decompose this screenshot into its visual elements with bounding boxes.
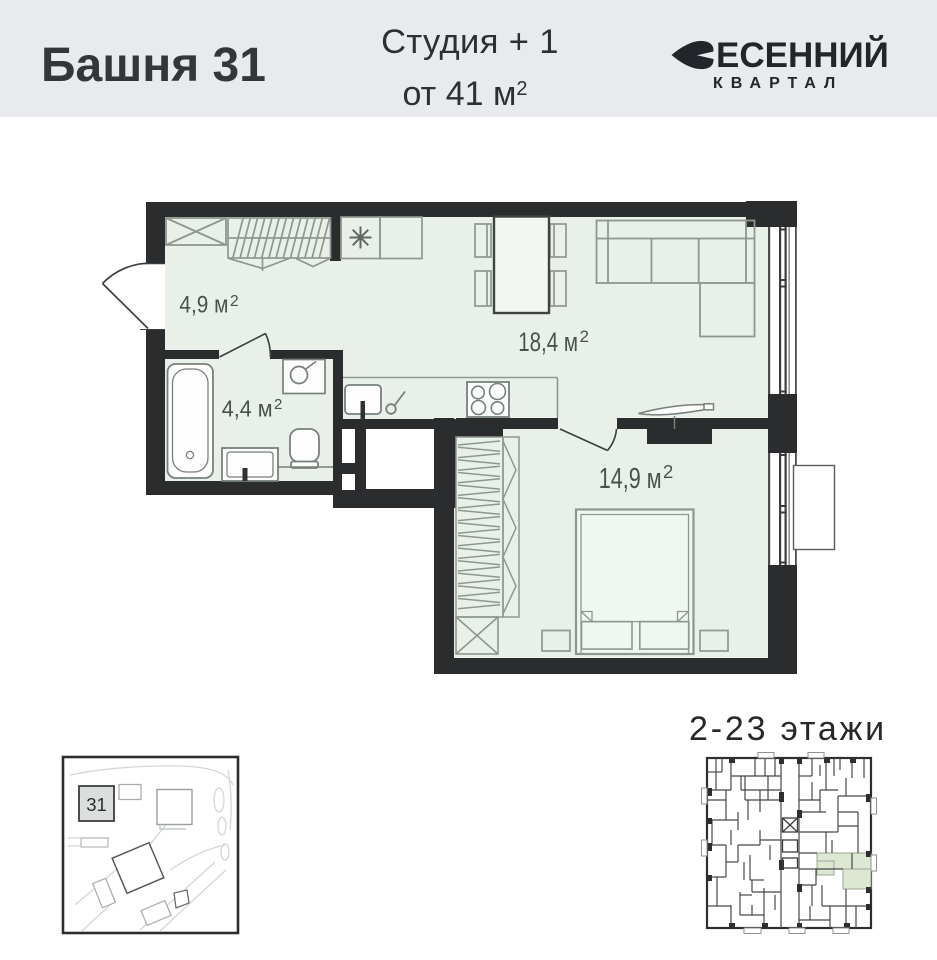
svg-text:2: 2 — [580, 327, 589, 346]
svg-text:14,9 м: 14,9 м — [599, 463, 662, 495]
svg-text:2-23 этажи: 2-23 этажи — [689, 710, 887, 748]
svg-text:от 41 м2: от 41 м2 — [403, 75, 528, 113]
svg-text:ЕСЕННИЙ: ЕСЕННИЙ — [716, 35, 889, 75]
svg-text:4,9 м: 4,9 м — [179, 292, 228, 319]
svg-text:31: 31 — [86, 794, 107, 815]
svg-text:18,4 м: 18,4 м — [518, 327, 578, 357]
svg-text:2: 2 — [274, 396, 282, 413]
svg-text:2: 2 — [230, 293, 239, 310]
svg-text:2: 2 — [663, 461, 673, 482]
svg-text:4,4 м: 4,4 м — [222, 395, 273, 421]
svg-text:КВАРТАЛ: КВАРТАЛ — [713, 75, 843, 92]
svg-text:Башня 31: Башня 31 — [41, 39, 266, 92]
svg-text:Студия + 1: Студия + 1 — [381, 23, 559, 61]
